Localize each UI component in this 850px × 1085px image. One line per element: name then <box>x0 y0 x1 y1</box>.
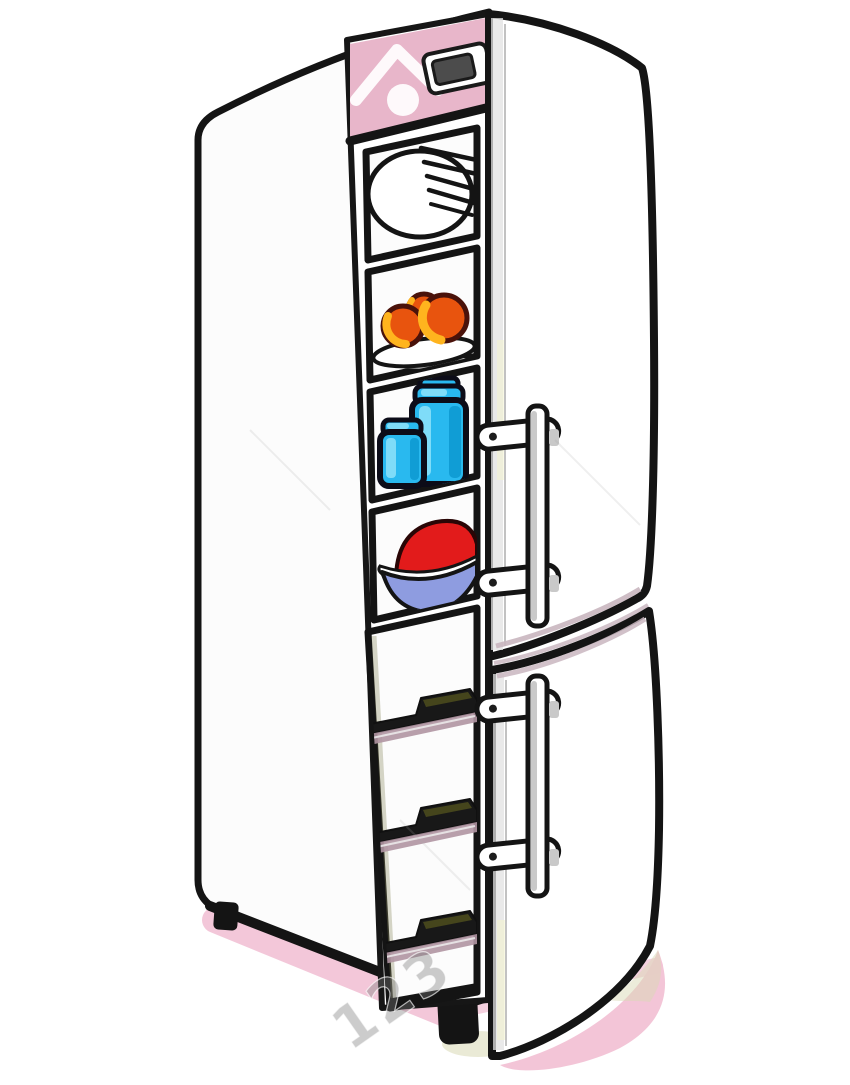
handle-bar <box>528 406 547 626</box>
jar-small-shade <box>410 438 419 480</box>
foot-left <box>213 901 239 931</box>
handle-bar-shade <box>531 411 537 621</box>
bracket-cap <box>549 701 559 718</box>
jar-large-lid-highlight <box>421 389 447 396</box>
jar-small-highlight <box>386 438 396 478</box>
jar-large-shade <box>449 406 461 478</box>
refrigerator-svg: 123 <box>0 0 850 1085</box>
lower-door-edge-tint <box>497 920 505 1040</box>
bracket-cap <box>549 575 559 592</box>
bracket-cap <box>549 849 559 866</box>
upper-door-edge-tint <box>497 340 504 480</box>
handle-bar <box>528 676 547 896</box>
watermark-sun <box>387 84 419 116</box>
jar-small-lid-highlight <box>387 423 409 429</box>
handle-bar-shade <box>531 681 537 891</box>
upper-door <box>476 14 654 656</box>
plate <box>368 151 472 237</box>
refrigerator-illustration: 123 <box>0 0 850 1085</box>
upper-door-panel <box>489 14 654 656</box>
upper-door-edge <box>491 18 503 650</box>
